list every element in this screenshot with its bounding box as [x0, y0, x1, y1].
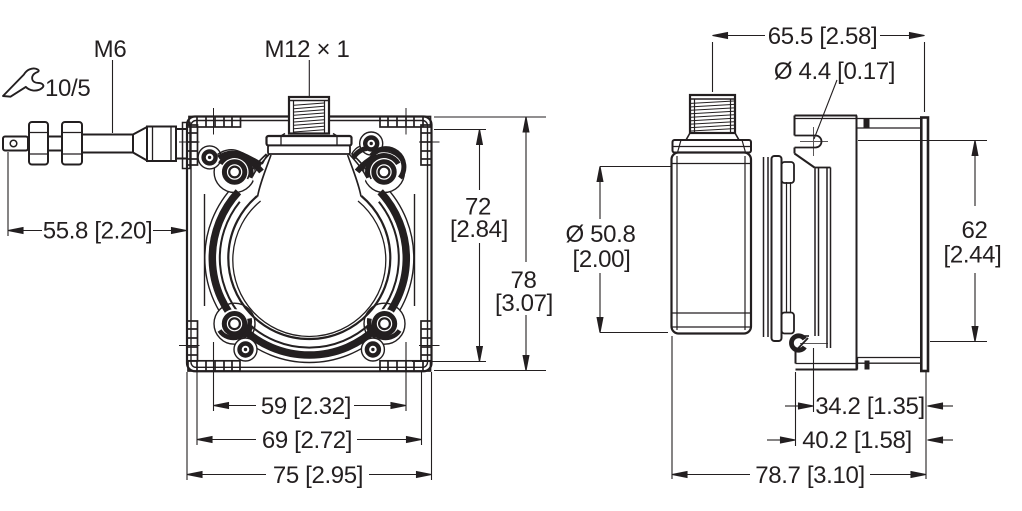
- svg-text:62: 62: [962, 217, 988, 244]
- svg-text:75 [2.95]: 75 [2.95]: [273, 462, 363, 489]
- svg-text:[3.07]: [3.07]: [495, 290, 553, 317]
- svg-text:Ø 4.4 [0.17]: Ø 4.4 [0.17]: [774, 58, 895, 85]
- svg-text:[2.44]: [2.44]: [944, 242, 1002, 269]
- svg-text:78.7 [3.10]: 78.7 [3.10]: [755, 462, 865, 489]
- svg-text:34.2 [1.35]: 34.2 [1.35]: [815, 393, 925, 420]
- svg-text:M12 × 1: M12 × 1: [265, 36, 350, 63]
- svg-text:Ø 50.8: Ø 50.8: [566, 221, 636, 248]
- svg-text:69 [2.72]: 69 [2.72]: [262, 427, 352, 454]
- svg-text:59 [2.32]: 59 [2.32]: [261, 393, 351, 420]
- svg-text:65.5 [2.58]: 65.5 [2.58]: [768, 23, 878, 50]
- svg-text:M6: M6: [94, 36, 127, 63]
- svg-text:40.2 [1.58]: 40.2 [1.58]: [802, 427, 912, 454]
- svg-text:[2.00]: [2.00]: [573, 246, 631, 273]
- svg-text:55.8 [2.20]: 55.8 [2.20]: [43, 218, 153, 245]
- svg-text:[2.84]: [2.84]: [450, 216, 508, 243]
- svg-text:10/5: 10/5: [45, 75, 90, 102]
